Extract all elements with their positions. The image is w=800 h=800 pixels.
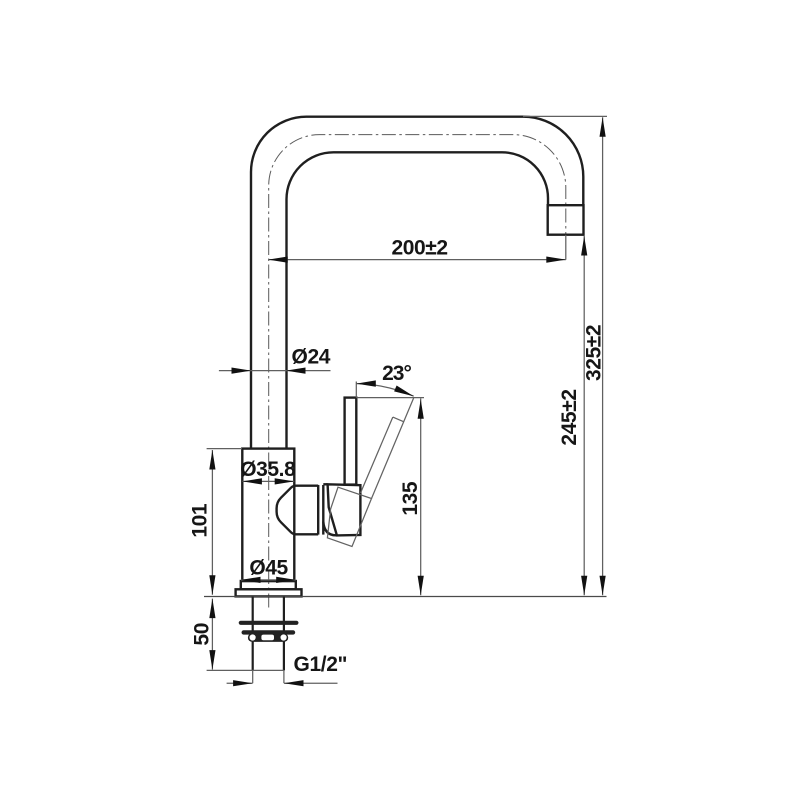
svg-text:50: 50 [190,623,213,646]
svg-text:Ø24: Ø24 [292,346,331,369]
svg-text:G1/2": G1/2" [294,653,347,676]
svg-text:325±2: 325±2 [583,325,606,381]
svg-text:101: 101 [189,503,212,538]
svg-text:245±2: 245±2 [558,389,581,445]
svg-text:Ø35.8: Ø35.8 [240,458,296,481]
svg-text:23°: 23° [382,362,411,385]
svg-text:Ø45: Ø45 [249,556,288,579]
svg-text:200±2: 200±2 [391,237,447,260]
svg-text:135: 135 [399,481,422,516]
